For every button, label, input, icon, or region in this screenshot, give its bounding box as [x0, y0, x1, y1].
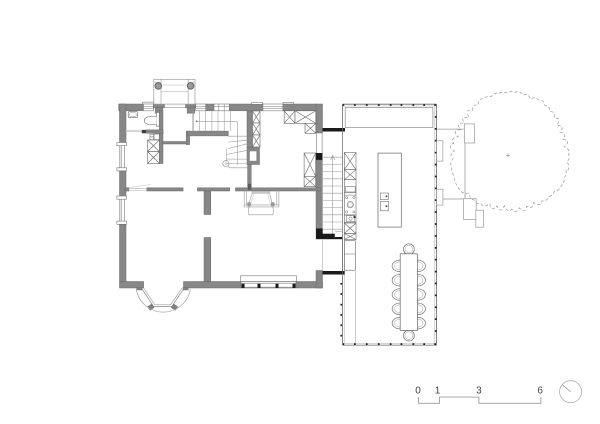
svg-text:6: 6	[537, 386, 543, 397]
svg-text:3: 3	[476, 386, 482, 397]
svg-text:1: 1	[435, 386, 441, 397]
svg-text:0: 0	[415, 386, 421, 397]
